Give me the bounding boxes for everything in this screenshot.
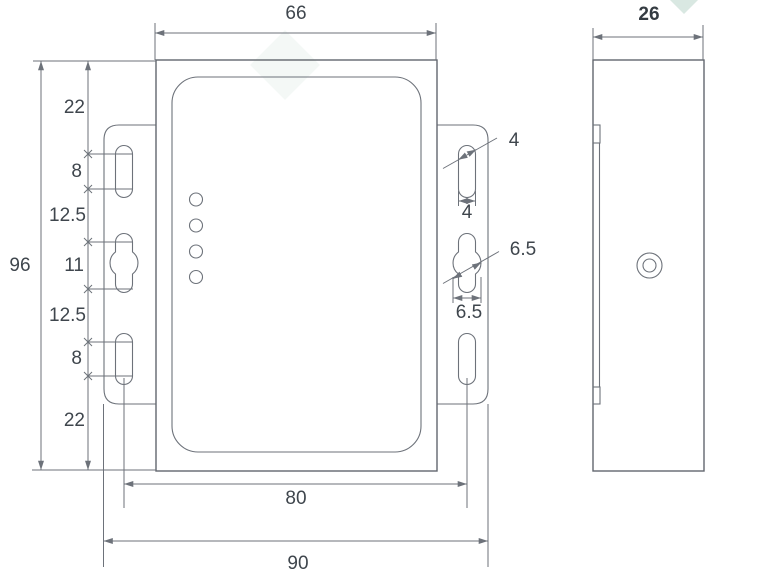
dim-label-11: 11 bbox=[64, 255, 84, 276]
side-body-outline bbox=[593, 60, 704, 471]
dim-label-90: 90 bbox=[287, 553, 308, 574]
led-indicators bbox=[190, 193, 203, 284]
left-flange-outline bbox=[104, 125, 156, 404]
side-view bbox=[593, 60, 704, 471]
dim-label-22-top: 22 bbox=[64, 97, 85, 118]
side-connector-outer-circle bbox=[637, 253, 662, 278]
dim-label-8-bottom: 8 bbox=[71, 348, 82, 369]
led-1-icon bbox=[190, 193, 203, 206]
left-bottom-mount-slot bbox=[116, 334, 133, 385]
dim-label-12-5-upper: 12.5 bbox=[49, 205, 86, 226]
side-flange-tab-bottom bbox=[593, 387, 600, 404]
dim-left-segment-chain: 22 8 12.5 11 12.5 8 22 bbox=[49, 61, 133, 470]
dim-label-22-bottom: 22 bbox=[64, 410, 85, 431]
dim-label-4-width: 4 bbox=[462, 202, 473, 223]
dim-side-depth-26: 26 bbox=[593, 4, 703, 60]
led-3-icon bbox=[190, 245, 203, 258]
dimension-drawing: 66 26 96 22 8 12.5 bbox=[0, 0, 761, 583]
dim-label-96: 96 bbox=[9, 255, 30, 276]
dim-label-66: 66 bbox=[285, 3, 306, 24]
right-top-mount-slot bbox=[459, 146, 476, 198]
side-flange-tab-top bbox=[593, 125, 600, 143]
dim-label-8-top: 8 bbox=[71, 161, 82, 182]
dim-slot-width-4: 4 4 bbox=[443, 130, 520, 223]
right-bottom-mount-slot bbox=[459, 334, 476, 385]
right-keyhole-slot bbox=[453, 234, 481, 293]
front-view bbox=[104, 60, 488, 471]
dim-label-26: 26 bbox=[638, 4, 659, 25]
dim-label-6-5-leader: 6.5 bbox=[510, 239, 536, 260]
dim-slot-span-80: 80 bbox=[124, 378, 467, 509]
watermark-diamond-top-right bbox=[654, 0, 714, 14]
dim-label-4-leader: 4 bbox=[509, 130, 520, 151]
led-4-icon bbox=[190, 271, 203, 284]
dimension-drawing-canvas: 66 26 96 22 8 12.5 bbox=[0, 0, 761, 583]
watermark-diamond-faint bbox=[250, 30, 320, 100]
dim-label-6-5-width: 6.5 bbox=[456, 302, 482, 323]
led-2-icon bbox=[190, 219, 203, 232]
dim-label-80: 80 bbox=[285, 488, 306, 509]
enclosure-body-outline bbox=[156, 60, 437, 471]
dim-bulge-dia-6-5: 6.5 6.5 bbox=[443, 239, 536, 323]
side-connector-inner-circle bbox=[643, 259, 656, 272]
left-top-mount-slot bbox=[116, 146, 133, 198]
enclosure-cover-panel bbox=[172, 77, 421, 452]
dim-label-12-5-lower: 12.5 bbox=[49, 305, 86, 326]
